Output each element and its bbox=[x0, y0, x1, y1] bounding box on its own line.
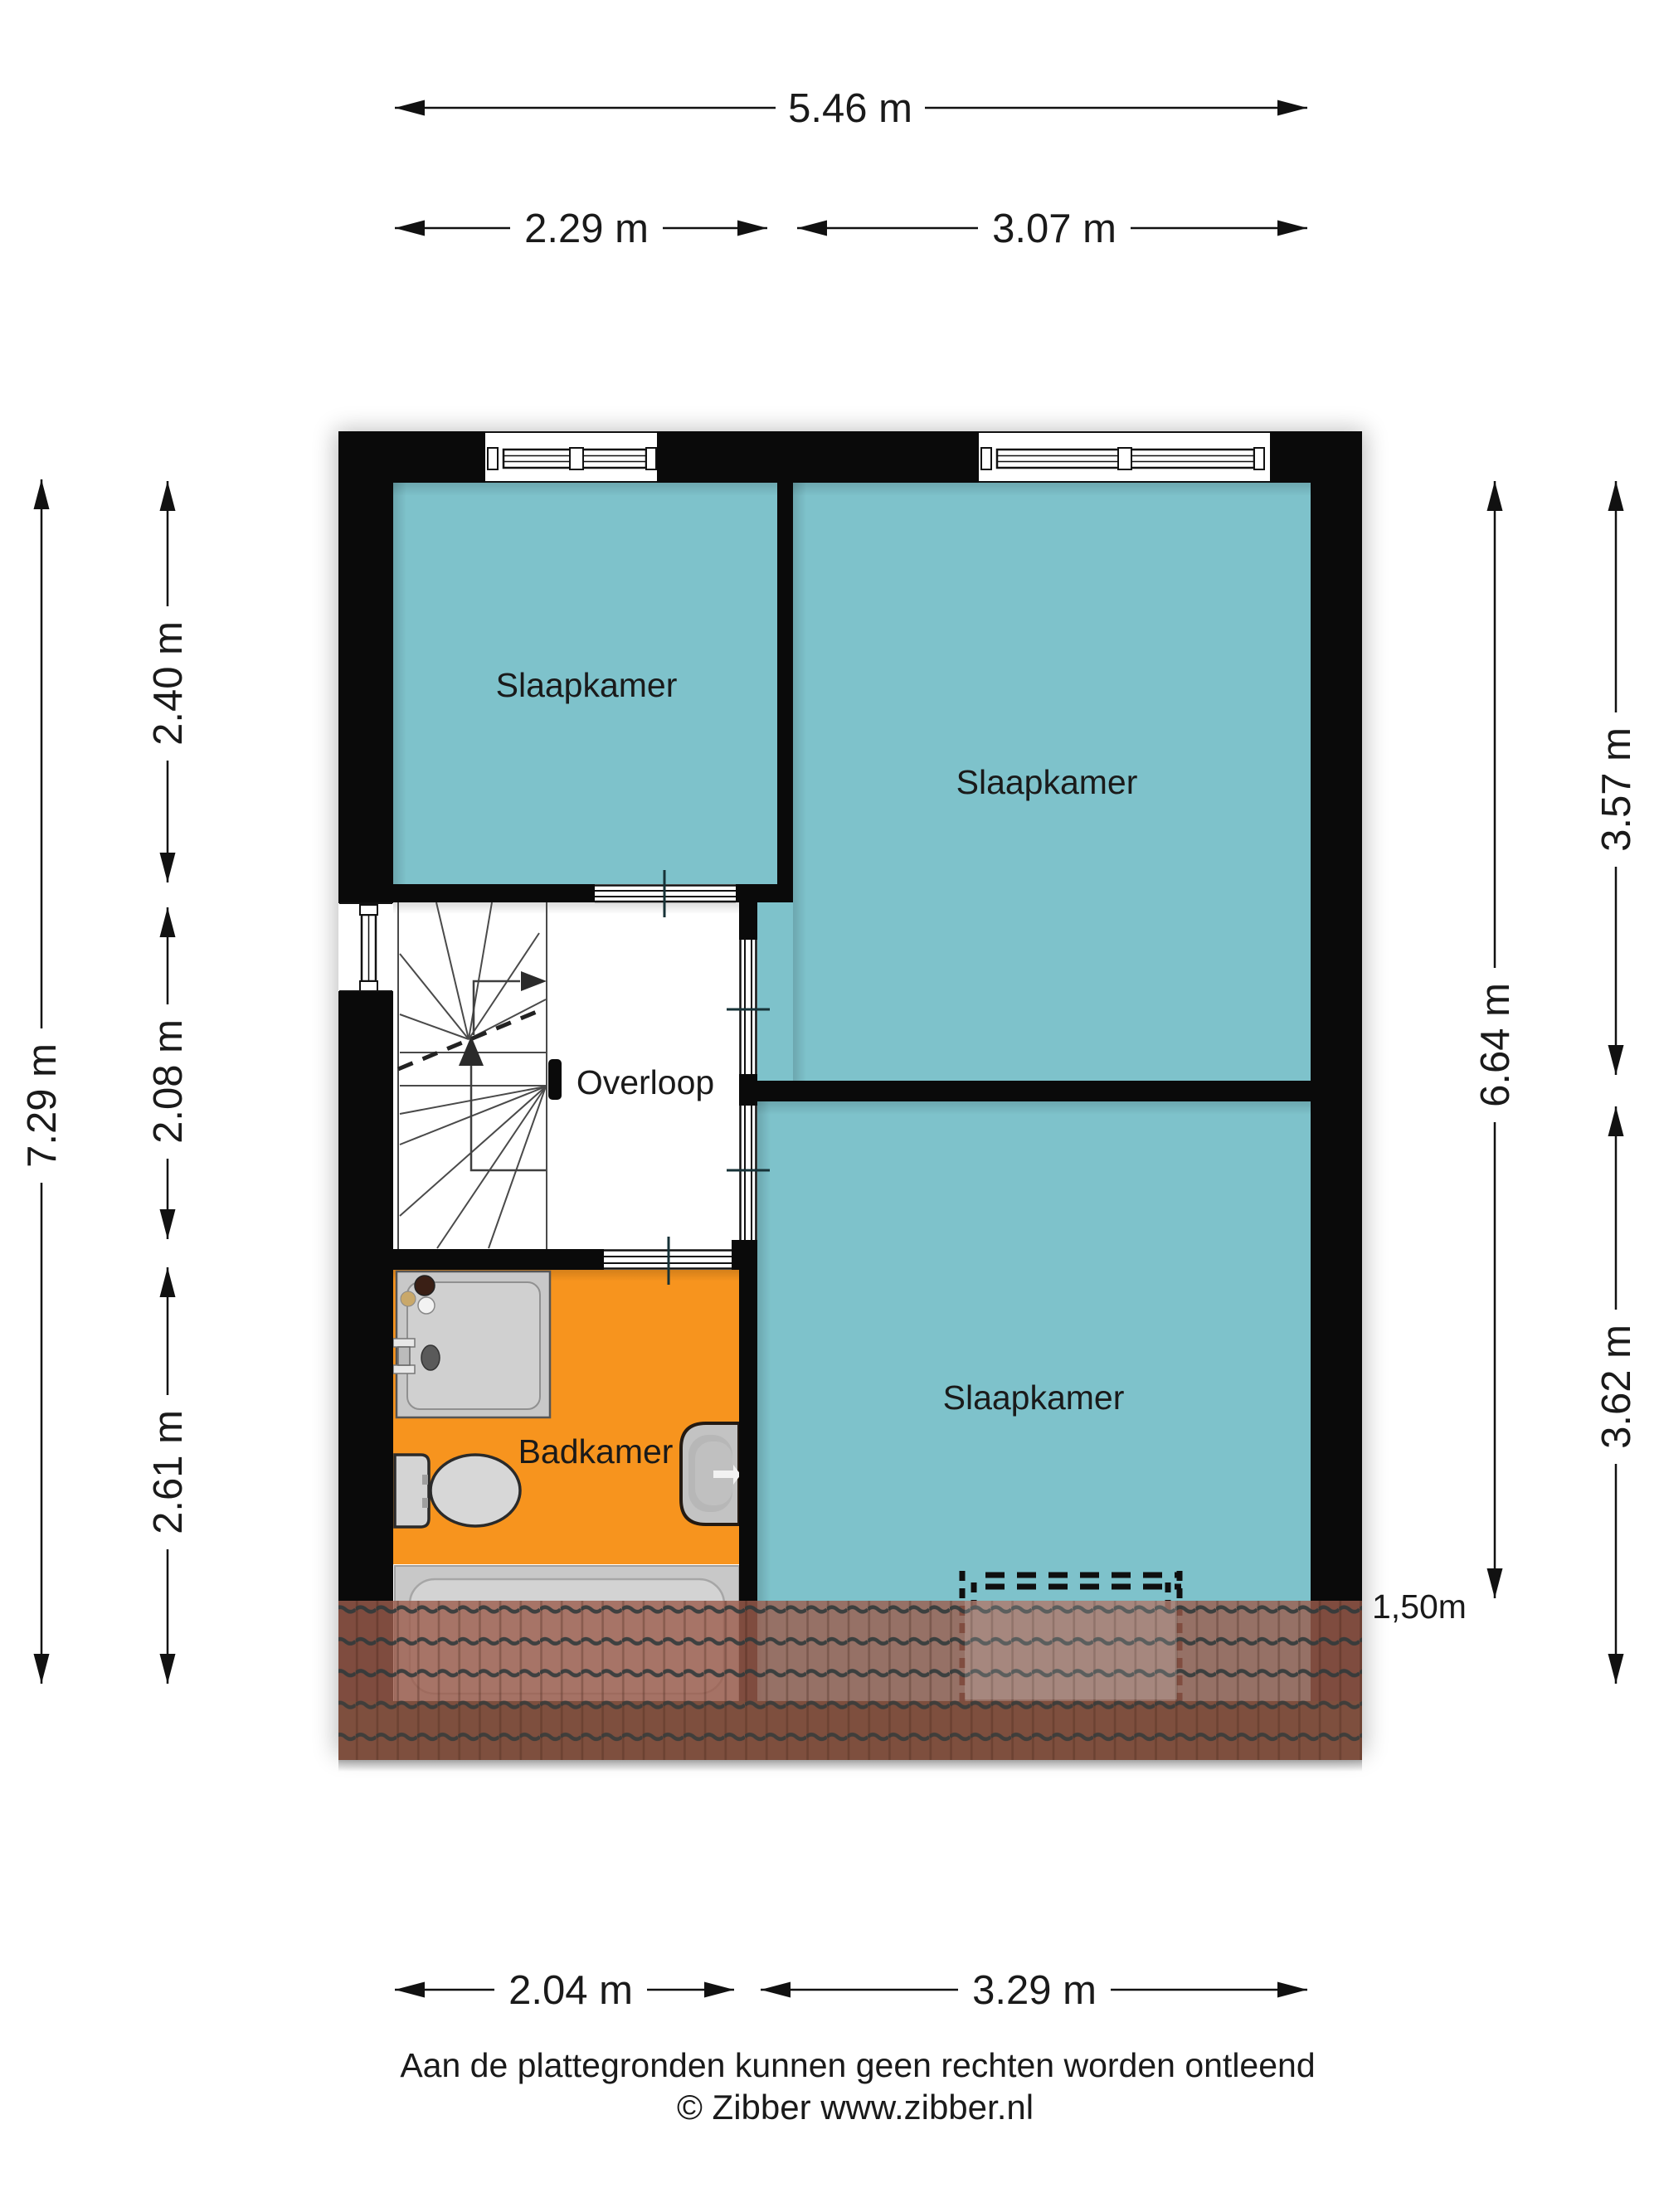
svg-text:2.29 m: 2.29 m bbox=[524, 207, 649, 251]
svg-text:© Zibber www.zibber.nl: © Zibber www.zibber.nl bbox=[677, 2088, 1034, 2127]
svg-text:5.46 m: 5.46 m bbox=[788, 86, 912, 131]
svg-text:Badkamer: Badkamer bbox=[518, 1432, 674, 1471]
svg-text:2.40 m: 2.40 m bbox=[146, 621, 191, 746]
svg-text:6.64 m: 6.64 m bbox=[1473, 983, 1518, 1107]
svg-text:1,50m: 1,50m bbox=[1372, 1587, 1467, 1626]
svg-text:Slaapkamer: Slaapkamer bbox=[956, 763, 1138, 801]
svg-text:3.07 m: 3.07 m bbox=[992, 207, 1117, 251]
svg-text:2.04 m: 2.04 m bbox=[508, 1968, 633, 2013]
svg-text:Slaapkamer: Slaapkamer bbox=[496, 666, 678, 704]
svg-text:Aan de plattegronden kunnen ge: Aan de plattegronden kunnen geen rechten… bbox=[400, 2046, 1315, 2084]
svg-text:3.62 m: 3.62 m bbox=[1594, 1325, 1639, 1449]
svg-text:Overloop: Overloop bbox=[577, 1063, 714, 1101]
svg-text:2.08 m: 2.08 m bbox=[146, 1019, 191, 1144]
svg-text:Slaapkamer: Slaapkamer bbox=[943, 1378, 1125, 1417]
svg-text:7.29 m: 7.29 m bbox=[20, 1043, 65, 1168]
svg-text:3.29 m: 3.29 m bbox=[972, 1968, 1097, 2013]
svg-text:3.57 m: 3.57 m bbox=[1594, 727, 1639, 852]
svg-text:2.61 m: 2.61 m bbox=[146, 1410, 191, 1534]
